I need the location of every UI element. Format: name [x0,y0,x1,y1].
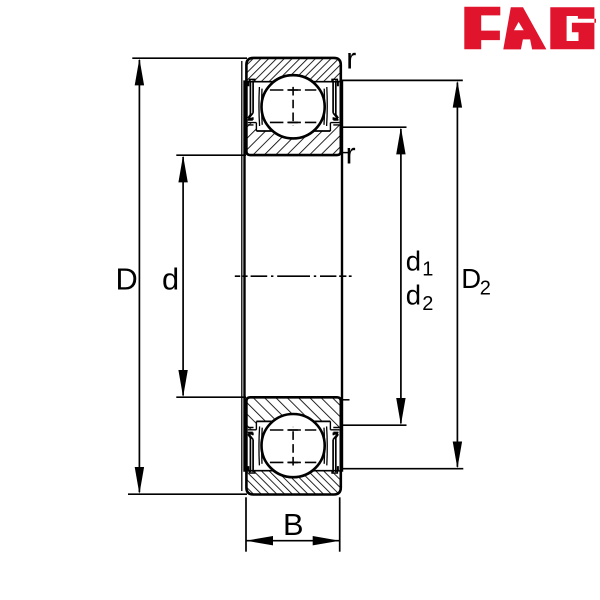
svg-text:D: D [116,262,138,297]
svg-text:1: 1 [422,259,433,281]
svg-text:B: B [283,507,304,542]
svg-text:D: D [461,263,481,294]
svg-text:2: 2 [422,293,433,315]
svg-text:2: 2 [480,277,491,299]
svg-text:r: r [346,137,356,170]
svg-text:d: d [406,279,421,310]
svg-text:r: r [346,43,356,76]
svg-text:d: d [406,246,421,277]
svg-text:d: d [162,262,179,297]
